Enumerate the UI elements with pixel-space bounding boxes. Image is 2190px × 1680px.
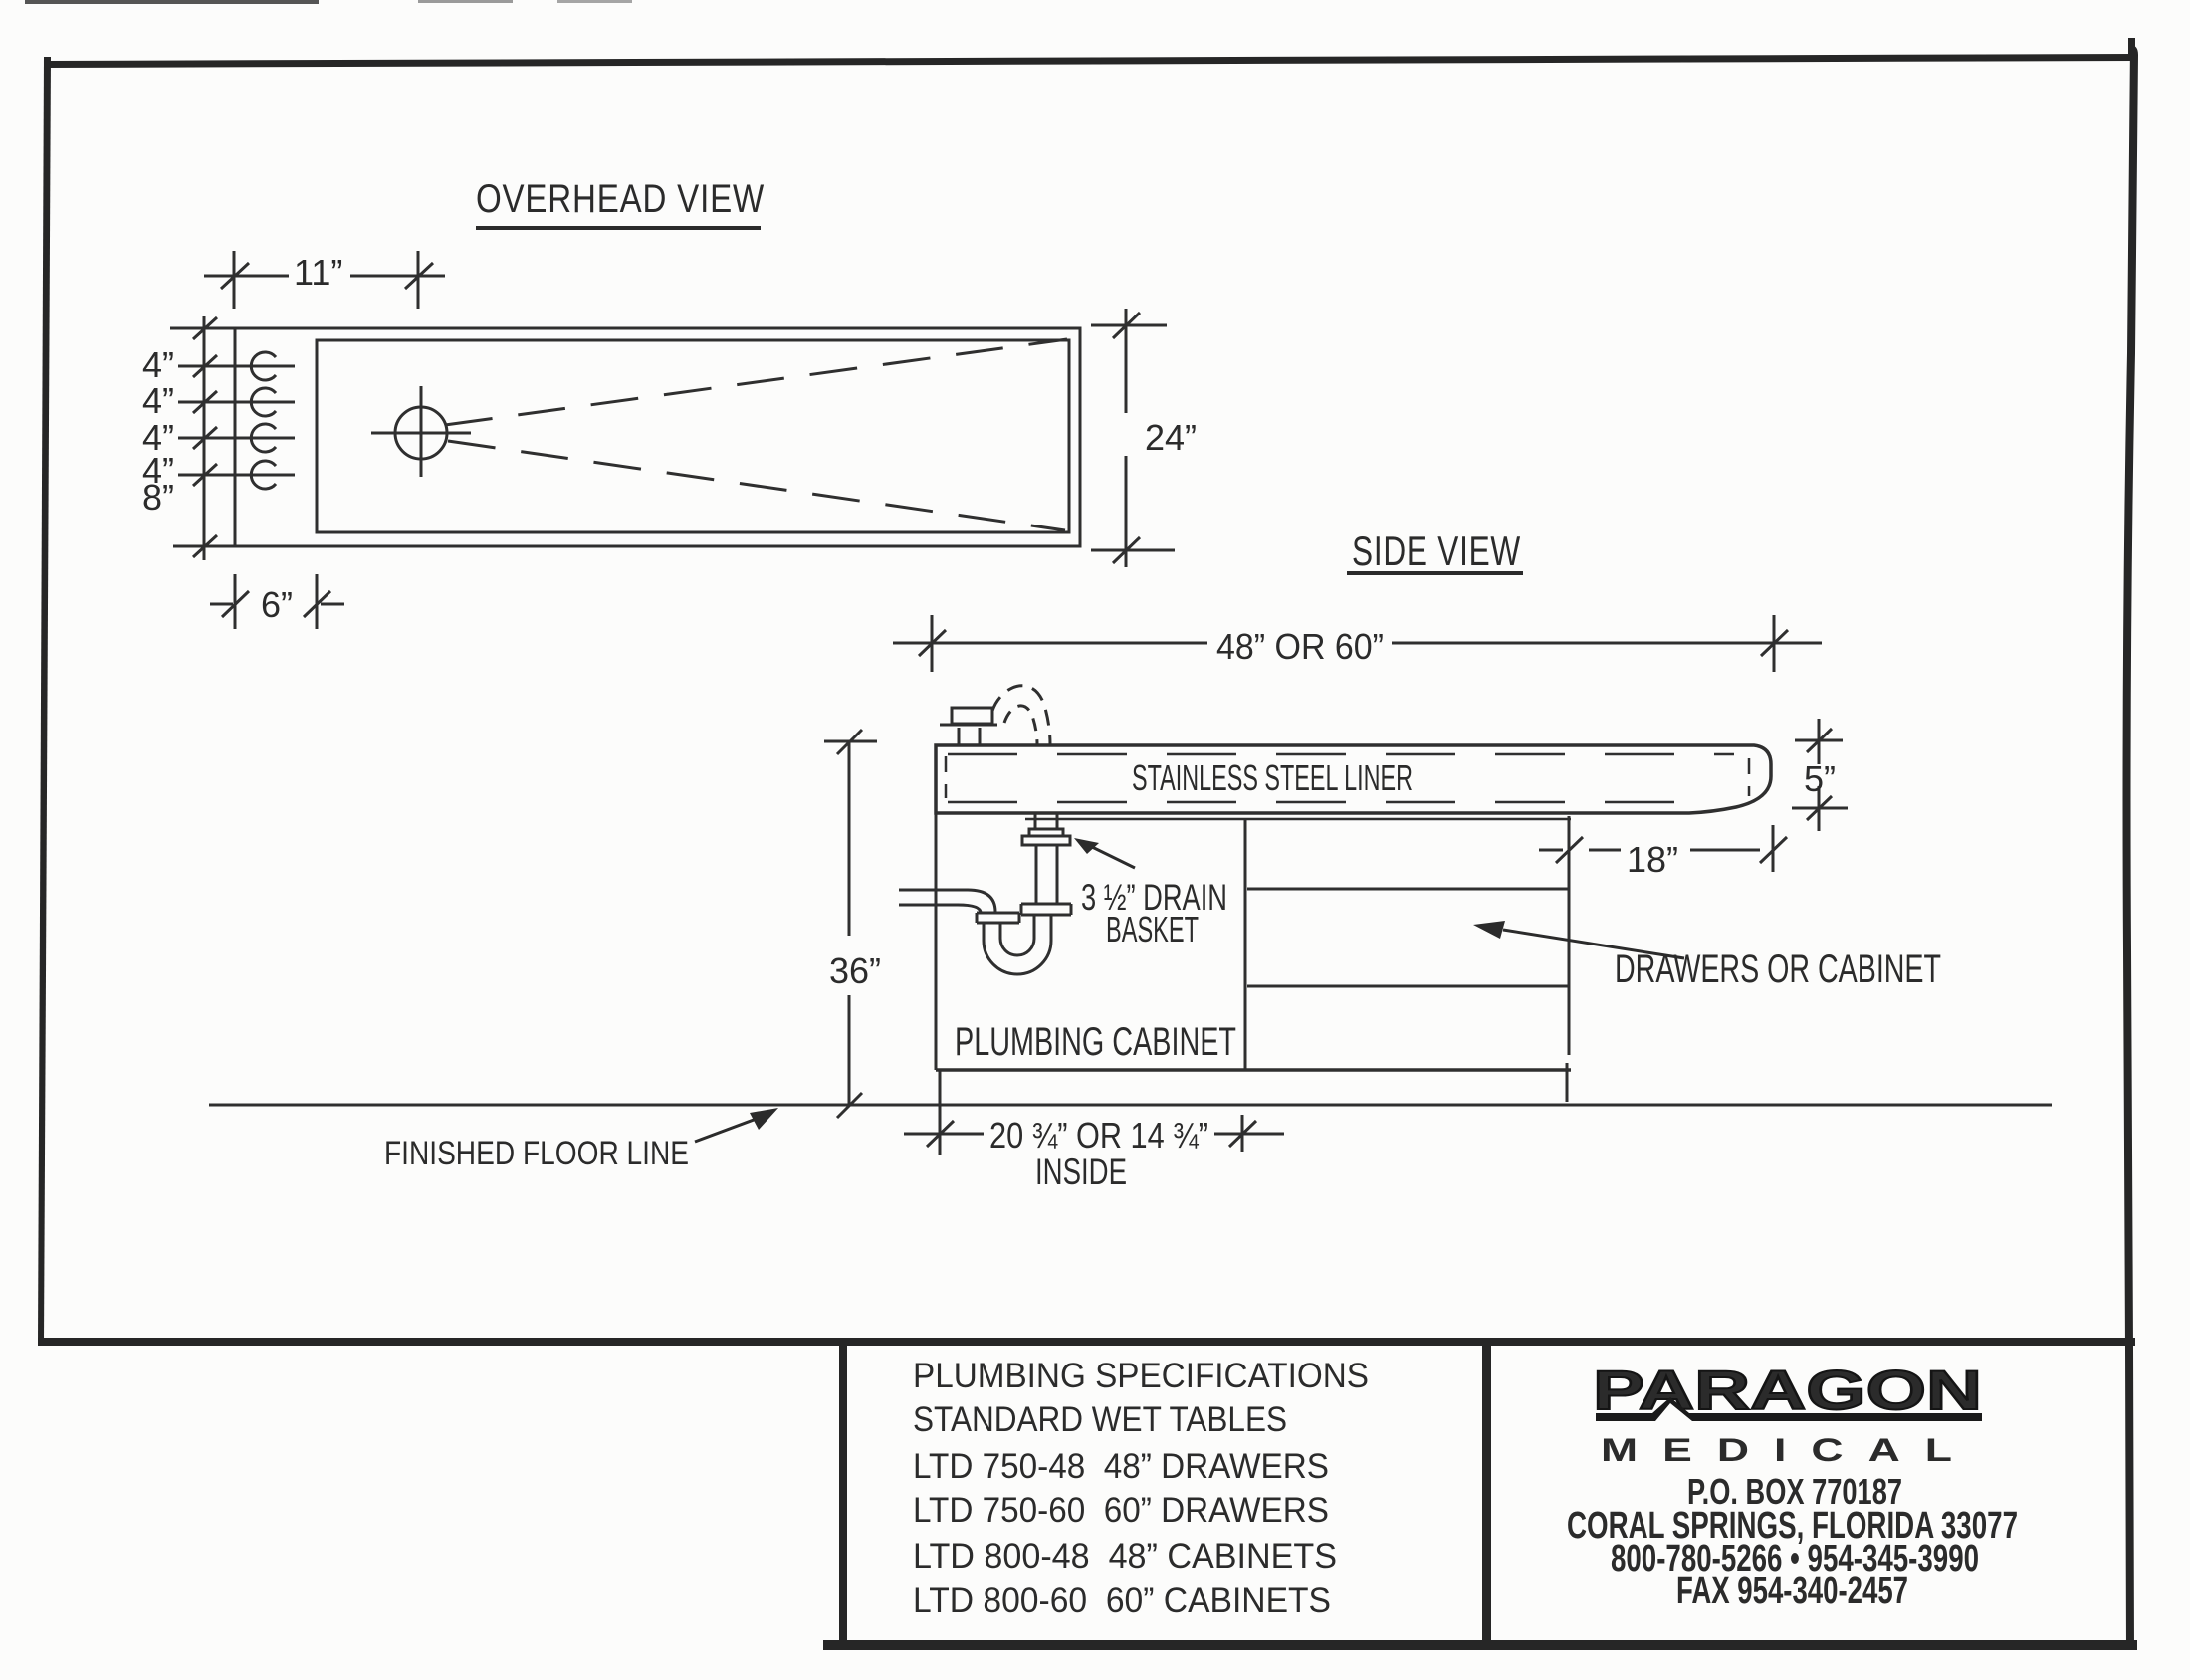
svg-text:LTD 800-60 60” CABINETS: LTD 800-60 60” CABINETS: [913, 1581, 1331, 1620]
svg-text:FAX 954-340-2457: FAX 954-340-2457: [1676, 1571, 1908, 1612]
svg-text:OVERHEAD VIEW: OVERHEAD VIEW: [476, 177, 765, 221]
svg-text:LTD 750-60 60” DRAWERS: LTD 750-60 60” DRAWERS: [913, 1491, 1329, 1530]
svg-text:6”: 6”: [261, 584, 293, 625]
svg-text:4”: 4”: [142, 380, 174, 421]
svg-text:FINISHED FLOOR LINE: FINISHED FLOOR LINE: [384, 1135, 689, 1172]
svg-text:5”: 5”: [1804, 758, 1836, 799]
svg-text:36”: 36”: [829, 950, 881, 991]
svg-text:24”: 24”: [1145, 417, 1197, 458]
svg-text:8”: 8”: [142, 477, 174, 518]
svg-text:LTD 750-48 48” DRAWERS: LTD 750-48 48” DRAWERS: [913, 1447, 1329, 1486]
svg-text:LTD 800-48 48” CABINETS: LTD 800-48 48” CABINETS: [913, 1537, 1337, 1575]
svg-text:PARAGON: PARAGON: [1593, 1360, 1982, 1421]
svg-text:48” OR 60”: 48” OR 60”: [1216, 626, 1384, 667]
svg-text:20 ¾” OR 14 ¾”: 20 ¾” OR 14 ¾”: [989, 1115, 1208, 1155]
svg-text:STANDARD WET TABLES: STANDARD WET TABLES: [913, 1400, 1287, 1439]
svg-text:18”: 18”: [1627, 839, 1678, 880]
svg-text:STAINLESS STEEL LINER: STAINLESS STEEL LINER: [1132, 757, 1413, 798]
svg-text:INSIDE: INSIDE: [1035, 1152, 1127, 1192]
svg-text:MEDICAL: MEDICAL: [1601, 1432, 1977, 1468]
svg-text:BASKET: BASKET: [1106, 909, 1199, 949]
svg-text:11”: 11”: [294, 252, 342, 293]
svg-text:PLUMBING SPECIFICATIONS: PLUMBING SPECIFICATIONS: [913, 1357, 1369, 1395]
svg-text:4”: 4”: [142, 344, 174, 385]
svg-text:SIDE VIEW: SIDE VIEW: [1352, 527, 1521, 574]
svg-text:PLUMBING CABINET: PLUMBING CABINET: [955, 1020, 1236, 1064]
